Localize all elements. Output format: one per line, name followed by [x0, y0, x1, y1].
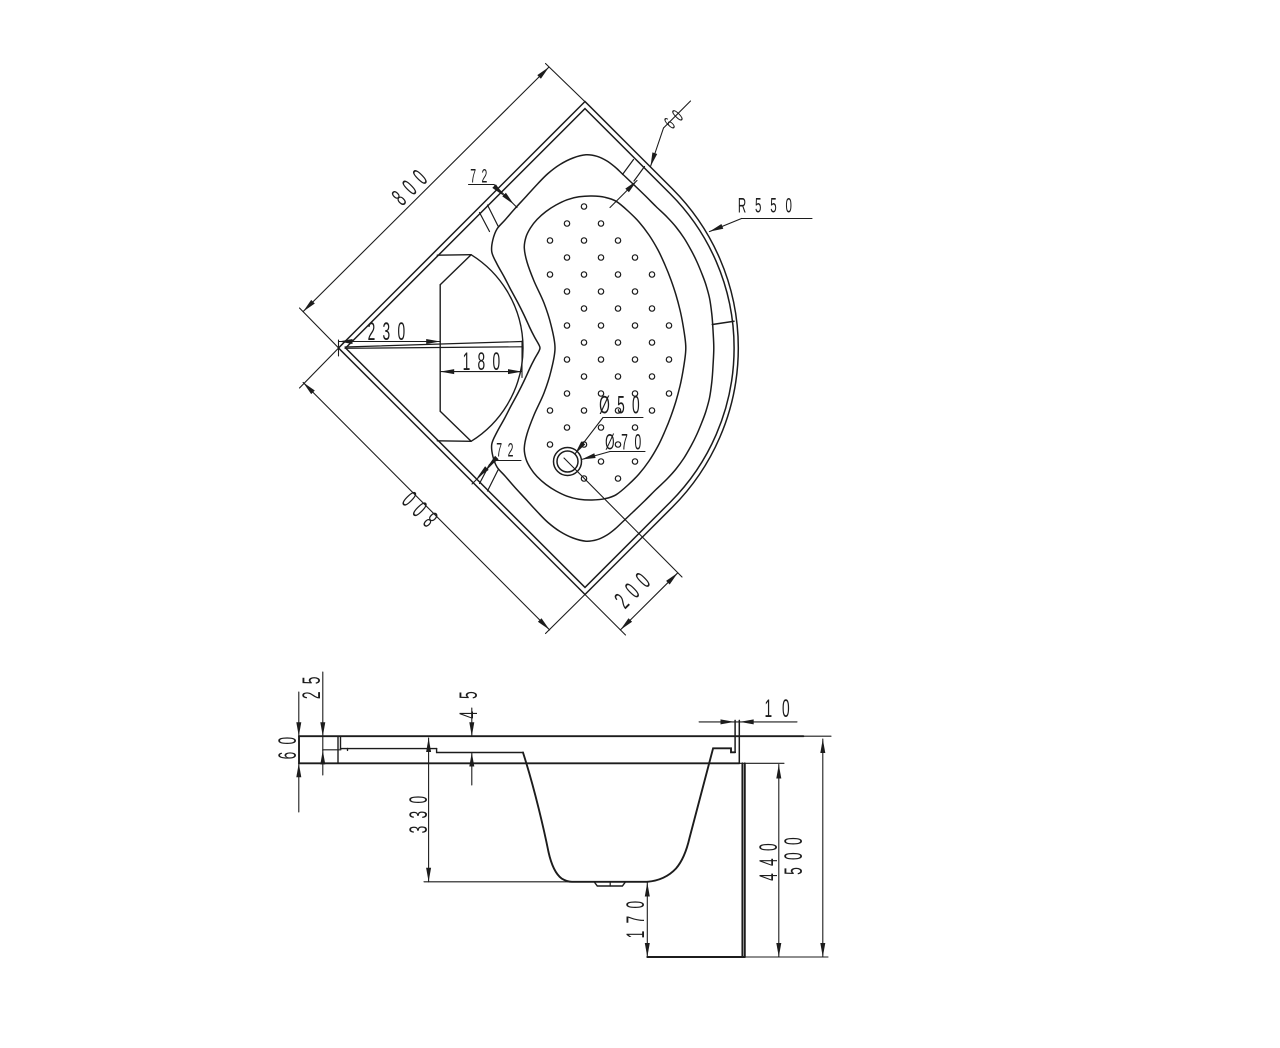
- svg-text:Ø50: Ø50: [599, 392, 647, 419]
- svg-text:10: 10: [764, 696, 799, 723]
- svg-text:170: 170: [623, 894, 650, 939]
- svg-text:230: 230: [368, 319, 413, 346]
- svg-text:440: 440: [756, 836, 783, 881]
- svg-text:45: 45: [456, 679, 483, 718]
- svg-text:500: 500: [781, 830, 808, 875]
- svg-text:330: 330: [406, 789, 433, 834]
- svg-text:R550: R550: [738, 194, 801, 218]
- svg-text:60: 60: [275, 730, 302, 760]
- svg-text:180: 180: [463, 349, 508, 376]
- svg-text:72: 72: [496, 440, 519, 461]
- svg-text:25: 25: [299, 669, 326, 699]
- svg-text:Ø70: Ø70: [605, 430, 648, 455]
